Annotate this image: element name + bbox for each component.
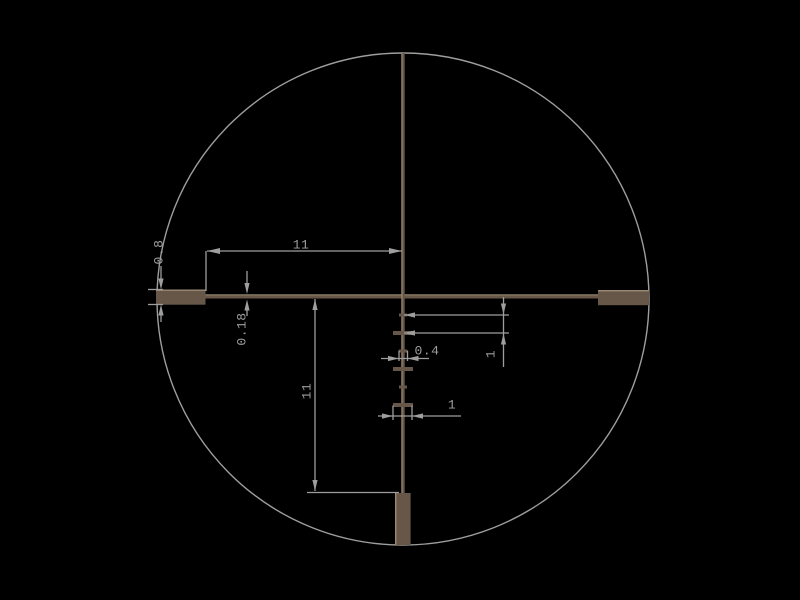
arrowhead-down-icon — [244, 283, 249, 294]
arrowhead-right-icon — [382, 413, 393, 418]
right-post-highlight — [598, 290, 649, 291]
arrowhead-left-icon — [412, 413, 423, 418]
dimension-label-post-thickness: 0.8 — [151, 240, 166, 265]
arrowhead-down-icon — [501, 304, 506, 315]
arrowhead-left-icon — [207, 248, 220, 254]
dimension-wire-thickness: 0.18 — [234, 271, 249, 346]
dimension-top-span: 11 — [206, 237, 402, 291]
left-post-highlight — [156, 290, 206, 291]
dimension-label-wire-thickness: 0.18 — [234, 312, 249, 345]
arrowhead-up-icon — [158, 305, 163, 316]
dimension-label-small-hash-width: 0.4 — [415, 343, 440, 358]
reticle-diagram-canvas: 11 0.8 0.18 11 1 — [0, 0, 800, 600]
arrowhead-left-icon — [404, 312, 415, 317]
dimension-label-top-span: 11 — [293, 237, 310, 252]
dimension-bottom-span: 11 — [299, 299, 399, 493]
arrowhead-up-icon — [501, 334, 506, 345]
dimension-label-large-hash-width: 1 — [448, 397, 456, 412]
left-post — [156, 290, 206, 305]
dimension-large-hash-width: 1 — [378, 397, 461, 420]
crosshair-wires — [205, 53, 598, 493]
hash-wide-2 — [393, 367, 413, 371]
hash-small-3 — [399, 386, 407, 389]
vertical-wire — [403, 53, 405, 493]
right-post — [598, 290, 649, 305]
arrowhead-up-icon — [244, 300, 249, 311]
dimension-small-hash-width: 0.4 — [381, 343, 439, 361]
dimension-label-hash-spacing: 1 — [483, 350, 498, 358]
arrowhead-right-icon — [388, 356, 399, 361]
reticle-diagram: 11 0.8 0.18 11 1 — [0, 0, 800, 600]
bottom-post — [395, 493, 411, 545]
arrowhead-down-icon — [158, 279, 163, 290]
arrowhead-down-icon — [312, 480, 317, 491]
vertical-wire-highlight — [401, 53, 402, 493]
arrowhead-right-icon — [389, 248, 402, 254]
hash-wide-3 — [393, 403, 413, 407]
arrowhead-up-icon — [312, 299, 317, 310]
hash-small-2 — [399, 350, 407, 353]
dimension-label-bottom-span: 11 — [299, 383, 314, 400]
bottom-post-highlight — [395, 493, 396, 545]
